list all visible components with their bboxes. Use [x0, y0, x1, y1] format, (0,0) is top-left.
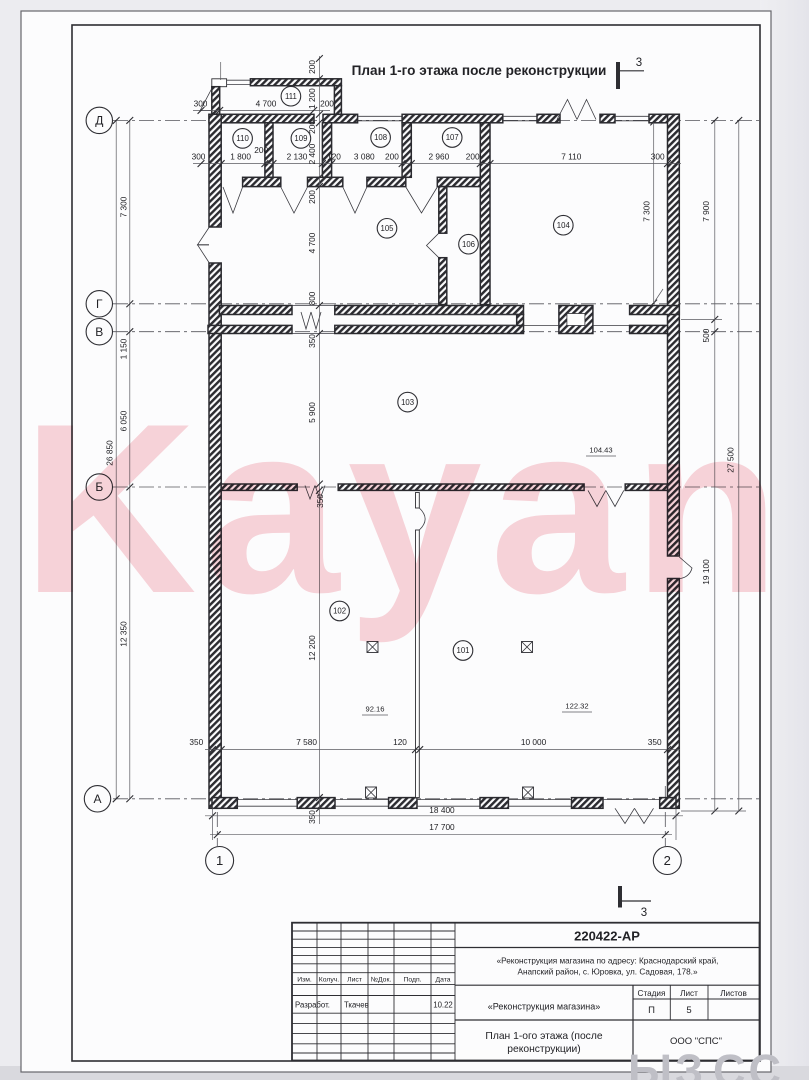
svg-text:Подп.: Подп. — [403, 977, 421, 984]
svg-text:№Док.: №Док. — [371, 977, 392, 984]
svg-text:Изм.: Изм. — [297, 977, 312, 984]
svg-text:Лист: Лист — [680, 989, 698, 998]
svg-text:Колуч.: Колуч. — [319, 977, 339, 984]
svg-text:П: П — [648, 1005, 655, 1016]
svg-text:Анапский район, с. Юровка, ул.: Анапский район, с. Юровка, ул. Садовая, … — [517, 968, 697, 977]
svg-text:Ткачев: Ткачев — [344, 1001, 369, 1010]
svg-text:Листов: Листов — [720, 989, 747, 998]
svg-text:Разработ.: Разработ. — [295, 1001, 330, 1010]
svg-text:реконструкции): реконструкции) — [507, 1044, 580, 1055]
svg-text:10.22: 10.22 — [433, 1001, 453, 1010]
svg-text:Стадия: Стадия — [638, 989, 666, 998]
svg-text:«Реконструкция магазина»: «Реконструкция магазина» — [488, 1002, 600, 1012]
svg-text:Дата: Дата — [435, 977, 450, 984]
svg-text:220422-АР: 220422-АР — [574, 929, 640, 944]
svg-text:Лист: Лист — [347, 977, 362, 984]
svg-text:5: 5 — [686, 1005, 691, 1016]
svg-text:«Реконструкция магазина по адр: «Реконструкция магазина по адресу: Красн… — [497, 957, 719, 966]
svg-text:План 1-ого этажа (после: План 1-ого этажа (после — [485, 1031, 602, 1042]
